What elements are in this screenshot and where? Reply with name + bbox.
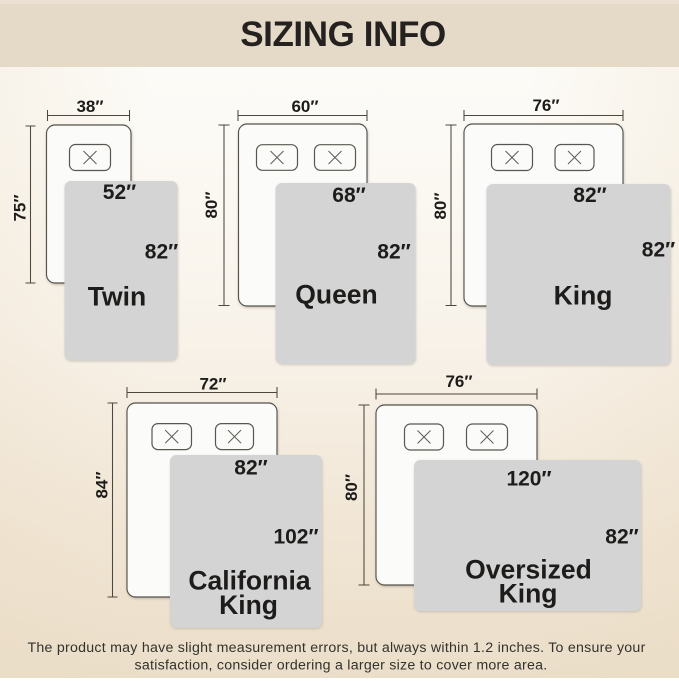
svg-text:King: King <box>499 579 558 609</box>
svg-text:60″: 60″ <box>291 97 318 116</box>
svg-text:King: King <box>219 590 278 620</box>
svg-text:King: King <box>554 281 613 311</box>
svg-text:The product may have slight me: The product may have slight measurement … <box>27 640 645 656</box>
svg-text:80″: 80″ <box>431 192 450 219</box>
svg-text:76″: 76″ <box>532 96 559 115</box>
svg-text:68″: 68″ <box>332 184 365 207</box>
svg-text:72″: 72″ <box>199 375 226 394</box>
svg-text:SIZING INFO: SIZING INFO <box>240 15 446 54</box>
svg-text:75″: 75″ <box>11 194 30 221</box>
svg-text:80″: 80″ <box>202 191 221 218</box>
svg-text:82″: 82″ <box>377 241 410 264</box>
svg-text:82″: 82″ <box>234 457 267 480</box>
svg-text:82″: 82″ <box>573 184 606 207</box>
svg-text:84″: 84″ <box>93 471 112 498</box>
svg-text:76″: 76″ <box>445 372 472 391</box>
svg-text:102″: 102″ <box>273 526 318 549</box>
svg-text:satisfaction, consider orderin: satisfaction, consider ordering a larger… <box>135 658 548 674</box>
svg-text:Queen: Queen <box>295 280 377 310</box>
svg-text:52″: 52″ <box>103 181 136 204</box>
svg-text:Twin: Twin <box>88 282 146 312</box>
svg-text:80″: 80″ <box>342 474 361 501</box>
svg-text:38″: 38″ <box>76 97 103 116</box>
svg-text:82″: 82″ <box>605 526 638 549</box>
svg-text:120″: 120″ <box>506 468 551 491</box>
svg-text:82″: 82″ <box>642 239 675 262</box>
svg-text:82″: 82″ <box>145 241 178 264</box>
